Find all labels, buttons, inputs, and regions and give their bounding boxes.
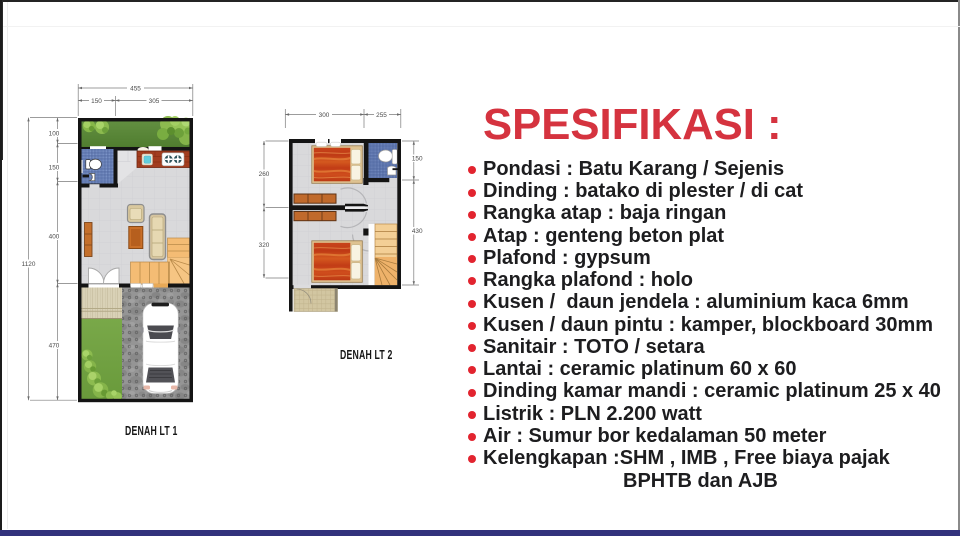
svg-text:100: 100 — [49, 131, 60, 138]
svg-text:150: 150 — [412, 156, 423, 163]
svg-text:150: 150 — [49, 165, 60, 172]
svg-text:320: 320 — [259, 242, 270, 249]
svg-text:455: 455 — [130, 86, 141, 93]
svg-text:430: 430 — [412, 228, 423, 235]
svg-text:1120: 1120 — [22, 261, 36, 268]
svg-text:305: 305 — [149, 98, 160, 105]
svg-text:150: 150 — [91, 98, 102, 105]
svg-text:255: 255 — [376, 112, 387, 119]
svg-text:300: 300 — [319, 112, 330, 119]
svg-text:400: 400 — [49, 234, 60, 241]
svg-text:260: 260 — [259, 171, 270, 178]
svg-text:470: 470 — [49, 343, 60, 350]
